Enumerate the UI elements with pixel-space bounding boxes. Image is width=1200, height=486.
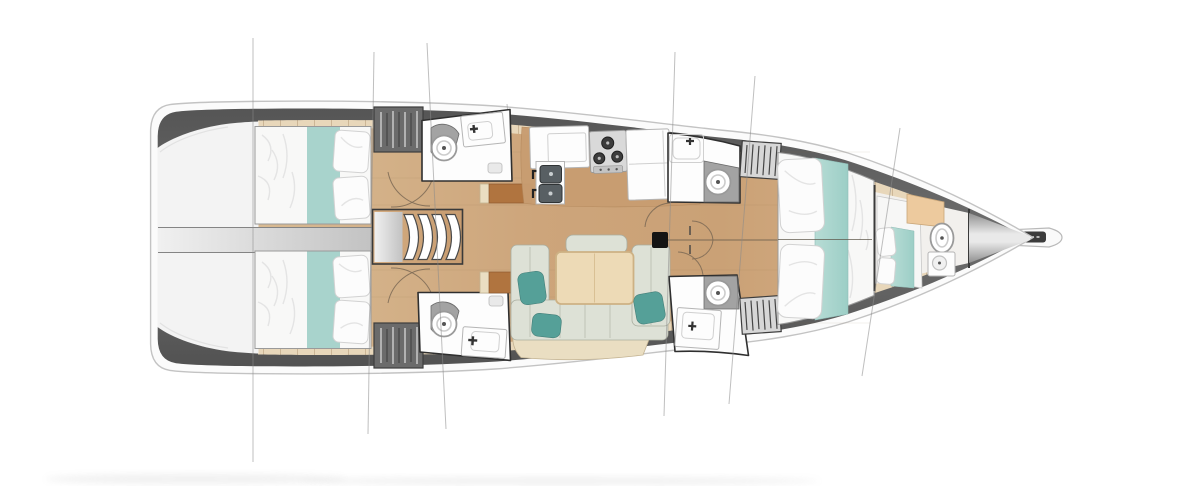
- fwd-cabin: [777, 153, 874, 325]
- fwd-vent-starboard: [740, 296, 781, 335]
- throw-pillow-teal: [517, 270, 547, 305]
- shelf-tray: [488, 163, 502, 173]
- cockpit-locker-starboard: [374, 323, 423, 368]
- aft-cabin-starboard: [255, 251, 371, 349]
- aft-cabin-port: [255, 127, 371, 225]
- pillow-shape: [876, 257, 896, 284]
- vanity-counter: [461, 327, 507, 359]
- washbasin-unit: [461, 327, 507, 359]
- pillow-shape: [333, 300, 371, 344]
- pillow-shape: [333, 130, 371, 173]
- desk-side: [480, 272, 490, 293]
- vanity-counter: [461, 112, 506, 147]
- pillow-shape: [777, 158, 825, 233]
- toilet-flush-dot: [716, 180, 720, 184]
- toilet-flush-dot: [940, 236, 944, 240]
- yacht-floorplan: Yacht deck floor plan: [0, 0, 1200, 486]
- yacht-floorplan-canvas: Yacht deck floor plan: [0, 0, 1200, 486]
- pillow: [333, 130, 371, 173]
- pillow-shape: [333, 255, 371, 298]
- washbasin-unit: [461, 112, 506, 147]
- pillow: [777, 244, 825, 319]
- shadow-blob-stern: [45, 474, 345, 484]
- pillow-shape: [876, 227, 897, 257]
- companionway: [373, 210, 463, 265]
- saloon: [511, 235, 670, 360]
- desk-side: [480, 184, 490, 203]
- galley-cabinet-fwd: [626, 129, 671, 200]
- companionway-landing: [375, 212, 403, 262]
- corridor-floor: [158, 228, 373, 253]
- pillow-shape: [777, 244, 825, 319]
- throw-pillow-teal: [531, 313, 562, 339]
- cockpit-locker-port: [374, 107, 423, 152]
- sink-drain: [549, 172, 553, 176]
- toilet-flush-dot: [716, 291, 720, 295]
- galley-sink-unit: [533, 162, 565, 205]
- aft-head-port: [422, 110, 512, 182]
- drain-dot: [938, 262, 941, 265]
- sink-drain: [549, 192, 553, 196]
- fwd-vent-port: [740, 141, 781, 180]
- hull-side-bench: [513, 337, 650, 360]
- throw-pillow-teal: [633, 291, 667, 326]
- engine-corridor: [158, 228, 373, 253]
- mast-foot: [652, 232, 668, 248]
- pillow: [333, 176, 371, 220]
- washbasin-unit: [675, 308, 722, 350]
- shelf-tray: [489, 296, 503, 306]
- ground-shadow: [45, 474, 820, 485]
- pillow: [333, 255, 371, 298]
- pillow: [777, 158, 825, 233]
- stove-unit: [589, 130, 627, 173]
- aft-head-starboard: [418, 293, 511, 361]
- pillow: [333, 300, 371, 344]
- toilet-flush-dot: [442, 146, 446, 150]
- toilet-flush-dot: [442, 322, 446, 326]
- shadow-blob-mid: [300, 477, 820, 485]
- sofa-headrest: [566, 235, 627, 254]
- pillow-shape: [333, 176, 371, 220]
